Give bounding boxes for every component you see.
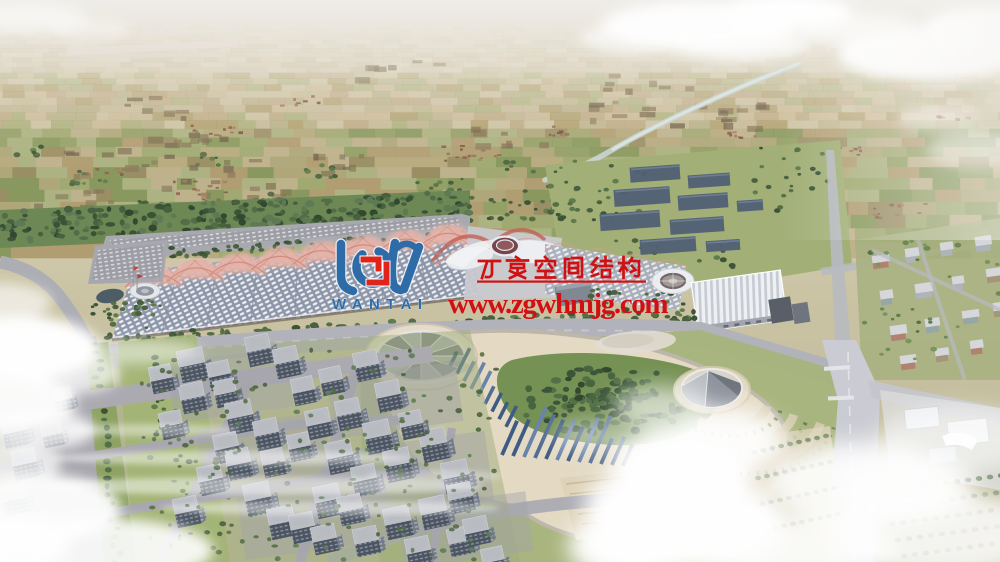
svg-text:www.zgwhmjg.com: www.zgwhmjg.com: [448, 288, 669, 320]
svg-text:WANTAI: WANTAI: [332, 296, 424, 313]
